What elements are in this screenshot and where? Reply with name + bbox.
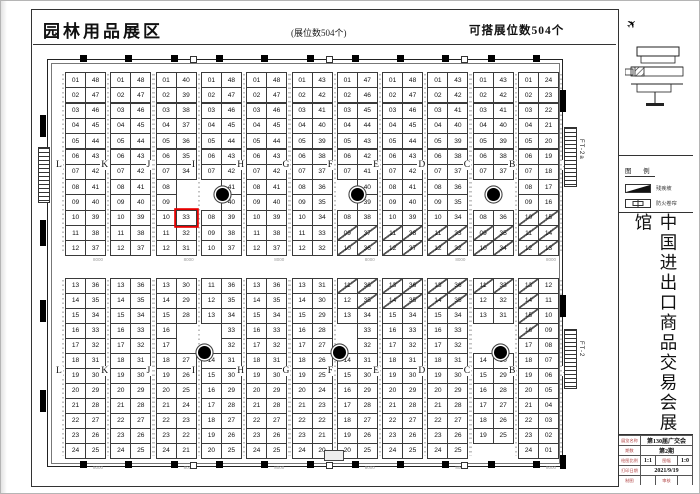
booth-cell[interactable]: 05 (292, 133, 313, 149)
booth-cell[interactable]: 04 (292, 118, 313, 134)
booth-cell[interactable]: 08 (382, 179, 403, 195)
booth-cell[interactable]: 17 (246, 338, 267, 354)
booth-cell[interactable]: 28 (357, 398, 378, 414)
booth-cell[interactable]: 13 (201, 308, 222, 324)
booth-cell[interactable]: 44 (221, 133, 242, 149)
booth-cell[interactable]: 11 (65, 225, 86, 241)
booth-cell[interactable]: 21 (518, 398, 539, 414)
booth-cell[interactable]: 28 (130, 398, 151, 414)
booth-cell[interactable]: 03 (337, 103, 358, 119)
booth-cell[interactable]: 09 (538, 323, 559, 339)
booth-cell[interactable]: 11 (382, 225, 403, 241)
booth-cell[interactable]: 17 (65, 338, 86, 354)
booth-cell[interactable]: 03 (382, 103, 403, 119)
booth-cell[interactable]: 45 (85, 118, 106, 134)
booth-cell[interactable]: 34 (447, 210, 468, 226)
booth-cell[interactable]: 21 (156, 398, 177, 414)
booth-cell[interactable]: 28 (493, 383, 514, 399)
booth-cell[interactable]: 16 (156, 323, 177, 339)
booth-cell[interactable]: 36 (357, 278, 378, 294)
booth-cell[interactable]: 04 (337, 118, 358, 134)
booth-cell[interactable]: 46 (130, 103, 151, 119)
booth-cell[interactable]: 32 (357, 338, 378, 354)
booth-cell[interactable]: 21 (246, 398, 267, 414)
booth-cell[interactable]: 26 (266, 428, 287, 444)
booth-cell[interactable]: 11 (518, 225, 539, 241)
booth-cell[interactable]: 37 (176, 118, 197, 134)
booth-cell[interactable]: 21 (538, 118, 559, 134)
booth-cell[interactable]: 22 (312, 413, 333, 429)
booth-cell[interactable]: 04 (538, 398, 559, 414)
booth-cell[interactable]: 36 (493, 210, 514, 226)
booth-cell[interactable]: 13 (292, 278, 313, 294)
booth-cell[interactable]: 10 (110, 210, 131, 226)
booth-cell[interactable]: 28 (447, 398, 468, 414)
booth-cell[interactable]: 41 (493, 103, 514, 119)
booth-cell[interactable]: 27 (130, 413, 151, 429)
booth-cell[interactable]: 01 (382, 72, 403, 88)
booth-cell[interactable]: 18 (292, 353, 313, 369)
booth-cell[interactable]: 44 (402, 133, 423, 149)
booth-cell[interactable]: 12 (427, 240, 448, 256)
booth-cell[interactable]: 08 (110, 179, 131, 195)
booth-cell[interactable]: 10 (427, 210, 448, 226)
booth-cell[interactable]: 17 (292, 338, 313, 354)
booth-cell[interactable]: 36 (402, 278, 423, 294)
booth-cell[interactable]: 14 (427, 293, 448, 309)
booth-cell[interactable]: 05 (473, 133, 494, 149)
booth-cell[interactable]: 29 (402, 383, 423, 399)
booth-cell[interactable]: 14 (518, 293, 539, 309)
booth-cell[interactable]: 16 (110, 323, 131, 339)
booth-cell[interactable]: 32 (493, 293, 514, 309)
booth-cell[interactable]: 16 (246, 323, 267, 339)
booth-cell[interactable]: 36 (221, 278, 242, 294)
booth-cell[interactable]: 25 (357, 443, 378, 459)
booth-cell[interactable]: 48 (266, 72, 287, 88)
booth-cell[interactable]: 23 (110, 428, 131, 444)
booth-cell[interactable]: 25 (176, 383, 197, 399)
booth-cell[interactable]: 12 (337, 293, 358, 309)
booth-cell[interactable]: 48 (130, 72, 151, 88)
booth-cell[interactable]: 03 (473, 103, 494, 119)
booth-cell[interactable]: 26 (130, 428, 151, 444)
booth-cell[interactable]: 25 (85, 443, 106, 459)
booth-cell[interactable]: 45 (266, 118, 287, 134)
booth-cell[interactable]: 48 (85, 72, 106, 88)
booth-cell[interactable]: 09 (427, 194, 448, 210)
booth-cell[interactable]: 16 (518, 323, 539, 339)
booth-cell[interactable]: 06 (201, 149, 222, 165)
booth-cell[interactable]: 30 (312, 293, 333, 309)
booth-cell[interactable]: 33 (447, 323, 468, 339)
booth-cell[interactable]: 03 (427, 103, 448, 119)
booth-cell[interactable]: 21 (176, 443, 197, 459)
booth-cell[interactable]: 06 (156, 149, 177, 165)
booth-cell[interactable]: 11 (427, 225, 448, 241)
booth-cell[interactable]: 03 (246, 103, 267, 119)
booth-cell[interactable]: 38 (176, 103, 197, 119)
booth-cell[interactable]: 34 (447, 308, 468, 324)
booth-cell[interactable]: 33 (266, 323, 287, 339)
booth-cell[interactable]: 08 (337, 210, 358, 226)
booth-cell[interactable]: 15 (337, 368, 358, 384)
booth-cell[interactable]: 33 (130, 323, 151, 339)
booth-cell[interactable]: 34 (493, 240, 514, 256)
booth-cell[interactable]: 35 (357, 293, 378, 309)
booth-cell[interactable]: 44 (266, 133, 287, 149)
booth-cell[interactable]: 07 (292, 164, 313, 180)
booth-cell[interactable]: 09 (473, 225, 494, 241)
booth-cell[interactable]: 23 (538, 87, 559, 103)
booth-cell[interactable]: 38 (266, 225, 287, 241)
booth-cell[interactable]: 25 (266, 443, 287, 459)
booth-cell[interactable]: 43 (447, 72, 468, 88)
booth-cell[interactable]: 19 (427, 368, 448, 384)
booth-cell[interactable]: 15 (538, 210, 559, 226)
booth-cell[interactable]: 02 (65, 87, 86, 103)
booth-cell[interactable]: 12 (473, 293, 494, 309)
booth-cell[interactable]: 39 (176, 87, 197, 103)
booth-cell[interactable]: 38 (221, 225, 242, 241)
booth-cell[interactable]: 01 (427, 72, 448, 88)
booth-cell[interactable]: 23 (176, 413, 197, 429)
booth-cell[interactable]: 46 (266, 103, 287, 119)
booth-cell[interactable]: 43 (312, 72, 333, 88)
booth-cell[interactable]: 04 (65, 118, 86, 134)
booth-cell[interactable]: 23 (312, 398, 333, 414)
booth-cell[interactable]: 20 (246, 383, 267, 399)
booth-cell[interactable]: 38 (130, 225, 151, 241)
booth-cell[interactable]: 24 (538, 72, 559, 88)
booth-cell[interactable]: 36 (266, 278, 287, 294)
booth-cell[interactable]: 27 (221, 413, 242, 429)
booth-cell[interactable]: 40 (176, 72, 197, 88)
booth-cell[interactable]: 10 (473, 240, 494, 256)
booth-cell[interactable]: 28 (402, 398, 423, 414)
booth-cell[interactable]: 21 (382, 398, 403, 414)
booth-cell[interactable]: 06 (110, 149, 131, 165)
booth-cell[interactable]: 13 (518, 278, 539, 294)
booth-cell[interactable]: 13 (473, 308, 494, 324)
booth-cell[interactable]: 02 (292, 87, 313, 103)
booth-cell[interactable]: 37 (266, 240, 287, 256)
booth-cell[interactable]: 05 (427, 133, 448, 149)
booth-cell[interactable]: 32 (402, 338, 423, 354)
booth-cell[interactable]: 01 (337, 72, 358, 88)
booth-cell[interactable]: 32 (312, 240, 333, 256)
booth-cell[interactable]: 16 (201, 383, 222, 399)
booth-cell[interactable]: 33 (85, 323, 106, 339)
booth-cell[interactable]: 12 (65, 240, 86, 256)
booth-cell[interactable]: 27 (402, 413, 423, 429)
booth-cell[interactable]: 03 (201, 103, 222, 119)
booth-cell[interactable]: 39 (130, 210, 151, 226)
booth-cell[interactable]: 02 (201, 87, 222, 103)
booth-cell[interactable]: 06 (382, 149, 403, 165)
booth-cell[interactable]: 34 (130, 308, 151, 324)
booth-cell[interactable]: 27 (312, 338, 333, 354)
booth-cell[interactable]: 05 (337, 133, 358, 149)
booth-cell[interactable]: 39 (447, 133, 468, 149)
booth-cell[interactable]: 20 (427, 383, 448, 399)
booth-cell[interactable]: 36 (312, 179, 333, 195)
booth-cell[interactable]: 04 (382, 118, 403, 134)
booth-cell[interactable]: 14 (65, 293, 86, 309)
booth-cell[interactable]: 14 (246, 293, 267, 309)
booth-cell[interactable]: 33 (447, 225, 468, 241)
booth-cell[interactable]: 24 (246, 443, 267, 459)
booth-cell[interactable]: 15 (156, 308, 177, 324)
booth-cell[interactable]: 11 (110, 225, 131, 241)
booth-cell[interactable]: 05 (382, 133, 403, 149)
booth-cell[interactable]: 26 (357, 428, 378, 444)
booth-cell[interactable]: 15 (246, 308, 267, 324)
booth-cell[interactable]: 36 (447, 278, 468, 294)
booth-cell[interactable]: 07 (337, 164, 358, 180)
booth-cell[interactable]: 26 (402, 428, 423, 444)
booth-cell[interactable]: 37 (85, 240, 106, 256)
booth-cell[interactable]: 40 (85, 194, 106, 210)
booth-cell[interactable]: 28 (176, 308, 197, 324)
booth-cell[interactable]: 23 (292, 428, 313, 444)
booth-cell[interactable]: 10 (382, 210, 403, 226)
booth-cell[interactable]: 01 (201, 72, 222, 88)
booth-cell[interactable]: 29 (130, 383, 151, 399)
booth-cell[interactable]: 09 (382, 194, 403, 210)
booth-cell[interactable]: 15 (110, 308, 131, 324)
booth-cell[interactable]: 15 (473, 368, 494, 384)
booth-cell[interactable]: 11 (201, 278, 222, 294)
booth-cell[interactable]: 12 (156, 240, 177, 256)
booth-cell[interactable]: 19 (518, 368, 539, 384)
booth-cell[interactable]: 37 (402, 240, 423, 256)
booth-cell[interactable]: 17 (201, 398, 222, 414)
booth-cell[interactable]: 18 (65, 353, 86, 369)
booth-cell[interactable]: 31 (312, 278, 333, 294)
booth-cell[interactable]: 35 (447, 194, 468, 210)
booth-cell[interactable]: 16 (427, 323, 448, 339)
booth-cell[interactable]: 20 (518, 383, 539, 399)
booth-cell[interactable]: 25 (221, 443, 242, 459)
booth-cell[interactable]: 32 (447, 240, 468, 256)
booth-cell[interactable]: 33 (402, 323, 423, 339)
booth-cell[interactable]: 33 (493, 278, 514, 294)
booth-cell[interactable]: 45 (357, 103, 378, 119)
booth-cell[interactable]: 25 (447, 443, 468, 459)
booth-cell[interactable]: 19 (246, 368, 267, 384)
booth-cell[interactable]: 04 (473, 118, 494, 134)
booth-cell[interactable]: 04 (246, 118, 267, 134)
booth-cell[interactable]: 17 (382, 338, 403, 354)
booth-cell[interactable]: 12 (292, 240, 313, 256)
booth-cell[interactable]: 48 (221, 72, 242, 88)
booth-cell[interactable]: 33 (221, 323, 242, 339)
booth-cell[interactable]: 10 (246, 210, 267, 226)
booth-cell[interactable]: 19 (473, 428, 494, 444)
booth-cell[interactable]: 41 (402, 179, 423, 195)
booth-cell[interactable]: 08 (427, 179, 448, 195)
booth-cell[interactable]: 03 (65, 103, 86, 119)
booth-cell[interactable]: 12 (110, 240, 131, 256)
booth-cell[interactable]: 01 (538, 443, 559, 459)
booth-cell[interactable]: 22 (518, 413, 539, 429)
booth-cell[interactable]: 02 (473, 87, 494, 103)
booth-cell[interactable]: 37 (357, 225, 378, 241)
booth-cell[interactable]: 06 (292, 149, 313, 165)
booth-cell[interactable]: 40 (493, 118, 514, 134)
booth-cell[interactable]: 41 (266, 179, 287, 195)
booth-cell[interactable]: 39 (266, 210, 287, 226)
booth-cell[interactable]: 02 (246, 87, 267, 103)
booth-cell[interactable]: 30 (176, 278, 197, 294)
booth-cell[interactable]: 19 (110, 368, 131, 384)
booth-cell[interactable]: 47 (130, 87, 151, 103)
booth-cell[interactable]: 34 (85, 308, 106, 324)
booth-cell[interactable]: 36 (447, 179, 468, 195)
booth-cell[interactable]: 24 (518, 443, 539, 459)
booth-cell[interactable]: 35 (312, 194, 333, 210)
booth-cell[interactable]: 20 (382, 383, 403, 399)
booth-cell[interactable]: 05 (110, 133, 131, 149)
booth-cell[interactable]: 35 (85, 293, 106, 309)
booth-cell[interactable]: 15 (292, 308, 313, 324)
booth-cell[interactable]: 23 (427, 428, 448, 444)
booth-cell[interactable]: 18 (201, 413, 222, 429)
booth-cell[interactable]: 10 (337, 240, 358, 256)
booth-cell[interactable]: 46 (357, 87, 378, 103)
booth-cell[interactable]: 28 (221, 398, 242, 414)
booth-cell[interactable]: 13 (65, 278, 86, 294)
booth-cell[interactable]: 13 (427, 278, 448, 294)
booth-cell[interactable]: 15 (427, 308, 448, 324)
booth-cell[interactable]: 19 (538, 149, 559, 165)
booth-cell[interactable]: 05 (201, 133, 222, 149)
booth-cell[interactable]: 07 (538, 353, 559, 369)
booth-cell[interactable]: 33 (312, 225, 333, 241)
booth-cell[interactable]: 17 (110, 338, 131, 354)
booth-cell[interactable]: 16 (337, 383, 358, 399)
booth-cell[interactable]: 06 (518, 149, 539, 165)
booth-cell[interactable]: 22 (246, 413, 267, 429)
booth-cell[interactable]: 25 (130, 443, 151, 459)
booth-cell[interactable]: 14 (110, 293, 131, 309)
booth-cell[interactable]: 47 (357, 72, 378, 88)
booth-cell[interactable]: 39 (85, 210, 106, 226)
booth-cell[interactable]: 20 (65, 383, 86, 399)
booth-cell[interactable]: 09 (337, 225, 358, 241)
booth-cell[interactable]: 24 (382, 443, 403, 459)
booth-cell[interactable]: 23 (156, 428, 177, 444)
booth-cell[interactable]: 02 (337, 87, 358, 103)
booth-cell[interactable]: 05 (65, 133, 86, 149)
booth-cell[interactable]: 01 (292, 72, 313, 88)
booth-cell[interactable]: 24 (65, 443, 86, 459)
booth-cell[interactable]: 22 (382, 413, 403, 429)
booth-cell[interactable]: 27 (357, 413, 378, 429)
booth-cell[interactable]: 18 (337, 413, 358, 429)
booth-cell[interactable]: 15 (65, 308, 86, 324)
booth-cell[interactable]: 17 (538, 179, 559, 195)
booth-cell[interactable]: 09 (518, 194, 539, 210)
booth-cell[interactable]: 18 (427, 353, 448, 369)
booth-cell[interactable]: 09 (201, 225, 222, 241)
booth-cell[interactable]: 14 (156, 293, 177, 309)
booth-cell[interactable]: 03 (110, 103, 131, 119)
booth-cell[interactable]: 04 (201, 118, 222, 134)
booth-cell[interactable]: 29 (312, 308, 333, 324)
booth-cell[interactable]: 21 (427, 398, 448, 414)
booth-cell[interactable]: 35 (447, 293, 468, 309)
booth-cell[interactable]: 19 (337, 428, 358, 444)
booth-cell[interactable]: 42 (447, 87, 468, 103)
booth-cell[interactable]: 08 (518, 179, 539, 195)
booth-cell[interactable]: 17 (337, 398, 358, 414)
booth-cell[interactable]: 29 (266, 383, 287, 399)
booth-cell[interactable]: 36 (357, 240, 378, 256)
booth-cell[interactable]: 46 (221, 103, 242, 119)
booth-cell[interactable]: 10 (65, 210, 86, 226)
booth-cell[interactable]: 14 (292, 293, 313, 309)
booth-cell[interactable]: 10 (538, 308, 559, 324)
booth-cell[interactable]: 07 (382, 164, 403, 180)
booth-cell[interactable]: 42 (493, 87, 514, 103)
booth-cell[interactable]: 10 (201, 240, 222, 256)
booth-cell[interactable]: 21 (65, 398, 86, 414)
booth-cell[interactable]: 35 (402, 293, 423, 309)
booth-cell[interactable]: 04 (518, 118, 539, 134)
booth-cell[interactable]: 16 (382, 323, 403, 339)
booth-cell[interactable]: 21 (312, 428, 333, 444)
booth-cell[interactable]: 22 (156, 413, 177, 429)
booth-cell[interactable]: 10 (518, 210, 539, 226)
booth-cell[interactable]: 05 (538, 383, 559, 399)
booth-cell[interactable]: 24 (176, 398, 197, 414)
booth-cell[interactable]: 43 (493, 72, 514, 88)
booth-cell[interactable]: 11 (473, 278, 494, 294)
booth-cell[interactable]: 04 (110, 118, 131, 134)
booth-cell[interactable]: 29 (221, 383, 242, 399)
booth-cell[interactable]: 13 (337, 308, 358, 324)
booth-cell[interactable]: 11 (156, 225, 177, 241)
booth-cell[interactable]: 27 (85, 413, 106, 429)
booth-cell[interactable]: 40 (402, 194, 423, 210)
booth-cell[interactable]: 09 (65, 194, 86, 210)
booth-cell[interactable]: 46 (85, 103, 106, 119)
booth-cell[interactable]: 16 (538, 194, 559, 210)
booth-cell[interactable]: 39 (221, 210, 242, 226)
booth-cell[interactable]: 41 (130, 179, 151, 195)
booth-cell[interactable]: 28 (85, 398, 106, 414)
booth-cell[interactable]: 07 (246, 164, 267, 180)
booth-cell[interactable]: 27 (266, 413, 287, 429)
booth-cell[interactable]: 09 (156, 194, 177, 210)
booth-cell[interactable]: 08 (538, 338, 559, 354)
booth-cell[interactable]: 10 (156, 210, 177, 226)
booth-cell[interactable]: 11 (337, 278, 358, 294)
booth-cell[interactable]: 32 (447, 338, 468, 354)
booth-cell[interactable]: 29 (357, 383, 378, 399)
booth-cell[interactable]: 04 (427, 118, 448, 134)
booth-cell[interactable]: 13 (382, 278, 403, 294)
booth-cell[interactable]: 32 (130, 338, 151, 354)
booth-cell[interactable]: 02 (538, 428, 559, 444)
booth-cell[interactable]: 12 (518, 240, 539, 256)
booth-cell[interactable]: 07 (110, 164, 131, 180)
booth-cell[interactable]: 31 (176, 240, 197, 256)
booth-cell[interactable]: 19 (201, 428, 222, 444)
booth-cell[interactable]: 08 (156, 179, 177, 195)
